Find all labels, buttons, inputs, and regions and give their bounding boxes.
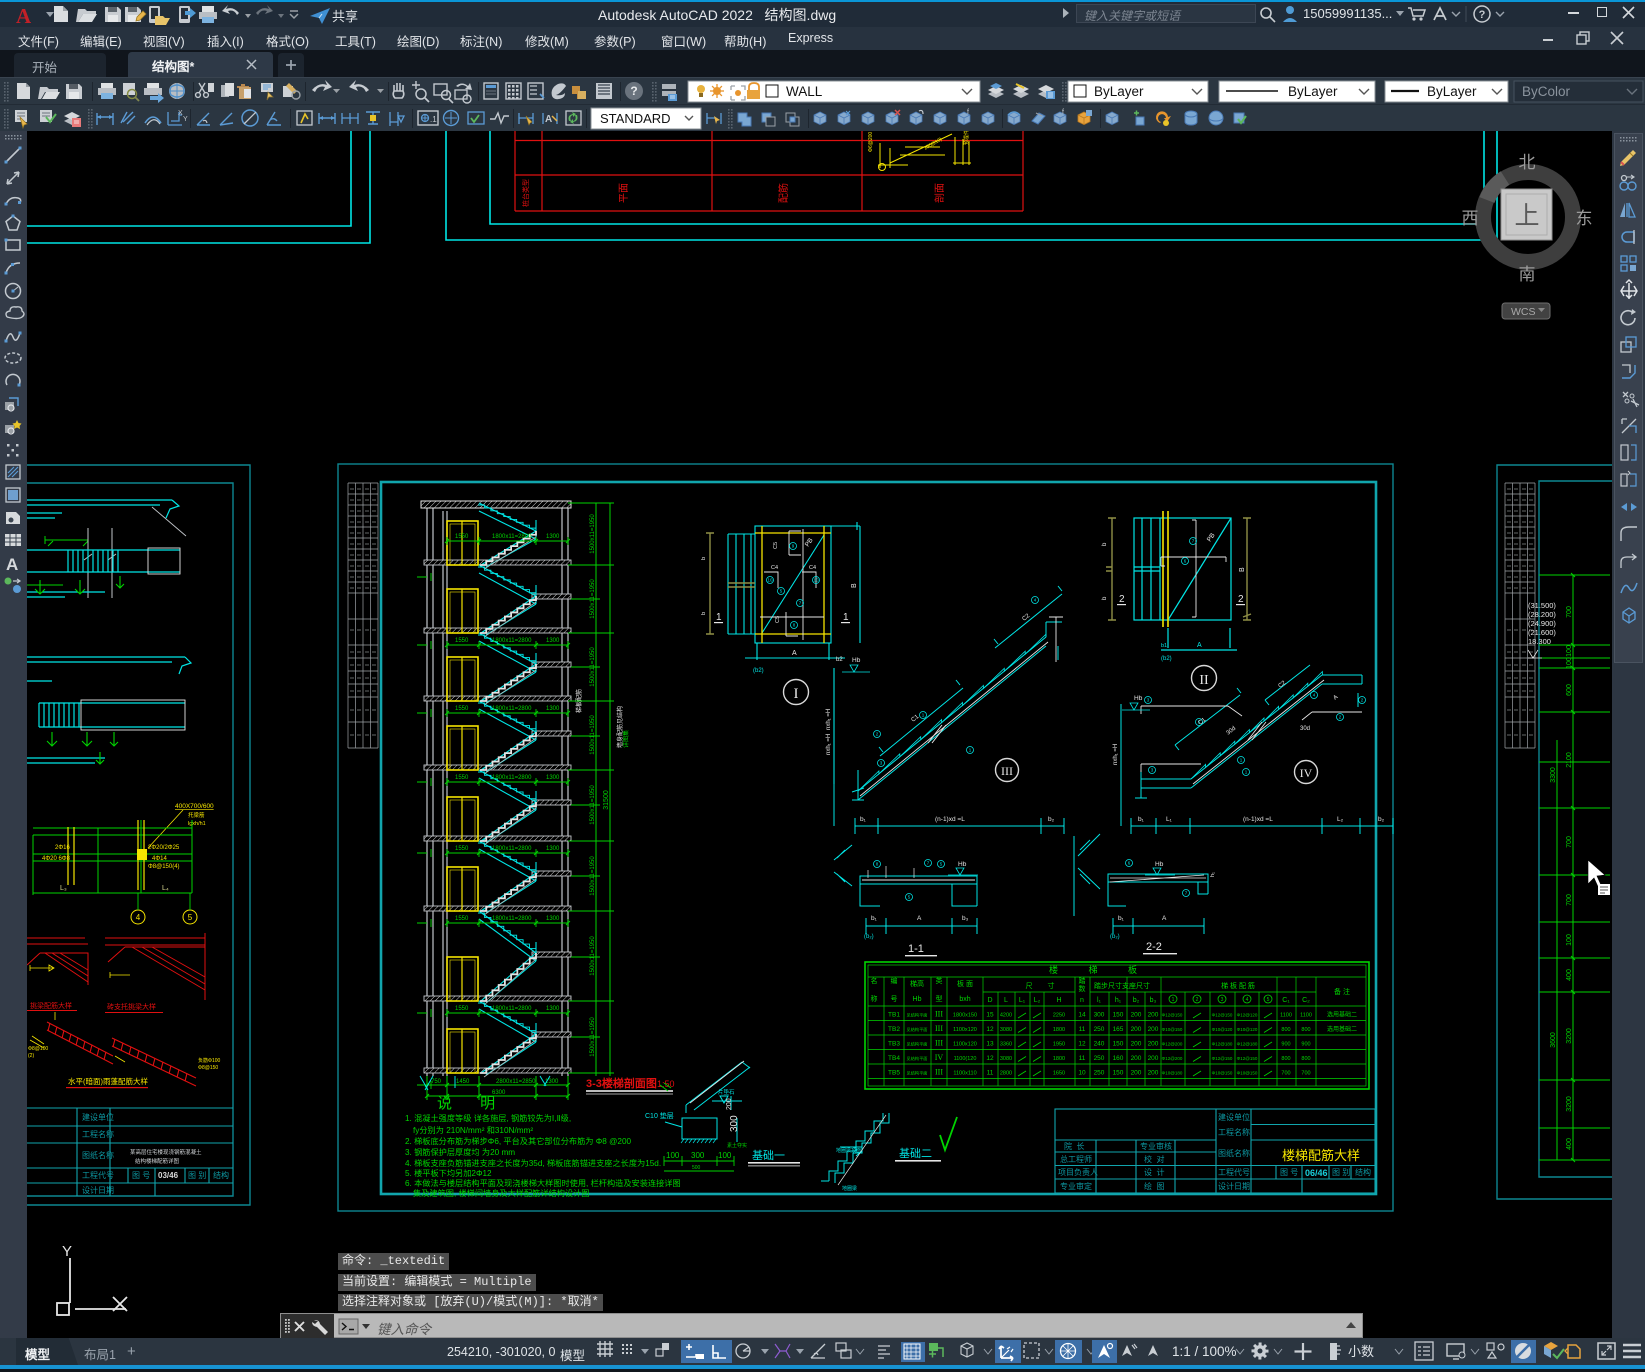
svg-text:砖支托挑梁大样: 砖支托挑梁大样 <box>107 1002 156 1011</box>
svg-text:5: 5 <box>940 862 943 867</box>
svg-text:A: A <box>792 650 797 657</box>
svg-text:Φ10@150: Φ10@150 <box>1162 1027 1183 1032</box>
svg-text:9: 9 <box>792 544 795 549</box>
svg-text:见结构平面: 见结构平面 <box>907 1041 928 1048</box>
svg-text:200: 200 <box>726 1098 733 1110</box>
svg-text:11: 11 <box>987 1070 994 1077</box>
svg-text:Hb: Hb <box>1155 861 1164 868</box>
svg-text:1550: 1550 <box>455 534 469 540</box>
svg-text:支座尺寸: 支座尺寸 <box>1122 981 1150 990</box>
svg-text:结构楼梯配筋详图: 结构楼梯配筋详图 <box>135 1157 180 1165</box>
svg-text:nxh₁ =H: nxh₁ =H <box>826 709 832 730</box>
svg-text:专业审定: 专业审定 <box>1060 1181 1092 1191</box>
svg-text:选用基础二: 选用基础二 <box>1327 1025 1357 1033</box>
svg-text:1300: 1300 <box>546 638 560 644</box>
svg-text:700: 700 <box>1281 1071 1290 1077</box>
svg-text:Φ8@150: Φ8@150 <box>198 1065 218 1071</box>
svg-text:5. 楼平板下均另加2Φ12: 5. 楼平板下均另加2Φ12 <box>405 1168 492 1178</box>
svg-text:见结构平面: 见结构平面 <box>907 1012 928 1019</box>
svg-text:设计日期: 设计日期 <box>82 1185 114 1195</box>
svg-text:见结构平面: 见结构平面 <box>907 1026 928 1033</box>
svg-text:3360: 3360 <box>1000 1042 1012 1048</box>
svg-text:3200: 3200 <box>1566 1096 1573 1112</box>
svg-text:数: 数 <box>1079 984 1086 993</box>
svg-text:lgxh/h1: lgxh/h1 <box>188 821 206 827</box>
svg-text:15: 15 <box>986 1012 994 1019</box>
svg-text:楼 梯 板: 楼 梯 板 <box>1049 964 1151 975</box>
svg-text:1: 1 <box>1172 997 1175 1003</box>
svg-text:基础一: 基础一 <box>752 1149 785 1162</box>
svg-text:素土夺实: 素土夺实 <box>727 1142 747 1149</box>
svg-text:III: III <box>1001 764 1013 778</box>
svg-text:400: 400 <box>1566 1138 1573 1150</box>
svg-text:1550: 1550 <box>455 916 469 922</box>
svg-text:100: 100 <box>1566 934 1573 946</box>
svg-text:Φ8@150(4): Φ8@150(4) <box>148 864 180 870</box>
svg-text:见结构平面: 见结构平面 <box>907 1055 928 1062</box>
svg-text:5: 5 <box>908 895 911 900</box>
svg-text:某高层住宅楼现浇钢筋混凝土: 某高层住宅楼现浇钢筋混凝土 <box>130 1148 202 1156</box>
svg-text:Φ12@200: Φ12@200 <box>1162 1042 1183 1047</box>
svg-text:8: 8 <box>876 862 879 867</box>
svg-text:图纸名称: 图纸名称 <box>1218 1148 1250 1158</box>
svg-text:2800x11=2850: 2800x11=2850 <box>496 1079 536 1085</box>
svg-text:ByLayer: ByLayer <box>1288 84 1338 99</box>
svg-text:nxh₁ =H: nxh₁ =H <box>826 734 832 755</box>
svg-text:b₁: b₁ <box>1138 816 1145 823</box>
svg-text:C4: C4 <box>809 565 816 571</box>
svg-text:ByColor: ByColor <box>1522 84 1571 99</box>
svg-text:图 号: 图 号 <box>1280 1168 1298 1177</box>
svg-text:墙身配筋见结构: 墙身配筋见结构 <box>616 706 624 748</box>
svg-text:C10 垫层: C10 垫层 <box>645 1111 674 1120</box>
svg-text:(24.900): (24.900) <box>1528 619 1556 628</box>
svg-text:L₃: L₃ <box>60 885 67 892</box>
svg-text:700: 700 <box>1566 836 1573 848</box>
svg-text:5: 5 <box>780 589 783 594</box>
svg-text:见结构平面: 见结构平面 <box>907 1070 928 1077</box>
svg-text:200: 200 <box>1131 1041 1142 1048</box>
svg-text:A: A <box>1162 915 1167 922</box>
svg-text:4200: 4200 <box>1000 1013 1012 1019</box>
svg-text:h₁: h₁ <box>1115 997 1122 1004</box>
svg-text:(n-1)xd =L: (n-1)xd =L <box>935 816 965 823</box>
svg-text:3600: 3600 <box>1550 1032 1557 1048</box>
svg-text:1800: 1800 <box>1053 1056 1065 1062</box>
svg-text:b₁: b₁ <box>871 915 878 922</box>
svg-text:1: 1 <box>922 713 925 718</box>
svg-text:STANDARD: STANDARD <box>600 111 671 126</box>
svg-text:II: II <box>1199 673 1209 688</box>
svg-text:设计日期: 设计日期 <box>1218 1181 1250 1191</box>
svg-text:Φ8@100: Φ8@100 <box>28 1046 48 1052</box>
svg-text:结构: 结构 <box>1355 1167 1371 1177</box>
svg-text:400: 400 <box>1566 969 1573 981</box>
svg-text:f: f <box>967 109 969 116</box>
svg-text:900: 900 <box>1301 1042 1310 1048</box>
svg-text:1550: 1550 <box>455 1006 469 1012</box>
svg-text:5: 5 <box>188 913 193 922</box>
svg-text:说 明: 说 明 <box>437 1095 507 1112</box>
svg-text:l₁: l₁ <box>1097 997 1102 1004</box>
svg-text:f: f <box>1062 109 1064 116</box>
svg-text:工程代号: 工程代号 <box>82 1170 114 1180</box>
svg-text:Φ10@180: Φ10@180 <box>1162 1071 1183 1076</box>
svg-text:楼梯配筋大样: 楼梯配筋大样 <box>1282 1148 1360 1163</box>
svg-text:100(210): 100(210) <box>923 136 944 151</box>
svg-text:1500x11=1950: 1500x11=1950 <box>590 647 596 687</box>
svg-text:100: 100 <box>1566 657 1573 669</box>
svg-text:Hb: Hb <box>913 996 922 1003</box>
svg-text:bxh: bxh <box>959 996 970 1003</box>
svg-text:1650: 1650 <box>1053 1071 1065 1077</box>
svg-text:4: 4 <box>1034 598 1037 603</box>
svg-text:800: 800 <box>1281 1027 1290 1033</box>
svg-text:200: 200 <box>1148 1012 1159 1019</box>
svg-text:1500x11=1950: 1500x11=1950 <box>590 715 596 755</box>
svg-text:ByLayer: ByLayer <box>1094 84 1144 99</box>
svg-text:1. 混凝土强度等级 详各施层, 钢筋铰先为Ⅰ,Ⅱ级,: 1. 混凝土强度等级 详各施层, 钢筋铰先为Ⅰ,Ⅱ级, <box>405 1113 571 1123</box>
svg-text:2: 2 <box>1238 594 1244 605</box>
svg-text:TB4: TB4 <box>888 1055 900 1062</box>
svg-text:图纸名称: 图纸名称 <box>82 1150 114 1160</box>
svg-text:2Φ16: 2Φ16 <box>55 845 70 851</box>
svg-text:2: 2 <box>1196 997 1199 1003</box>
svg-text:C2: C2 <box>1278 680 1288 690</box>
svg-text:2-2: 2-2 <box>1146 941 1162 953</box>
svg-text:1550: 1550 <box>455 775 469 781</box>
svg-text:250: 250 <box>1094 1055 1105 1062</box>
svg-text:3080: 3080 <box>1000 1027 1012 1033</box>
svg-text:东: 东 <box>1576 209 1593 228</box>
svg-text:型: 型 <box>936 994 943 1003</box>
svg-text:10: 10 <box>813 578 819 583</box>
svg-text:WALL: WALL <box>786 84 823 99</box>
svg-text:200: 200 <box>1131 1012 1142 1019</box>
svg-text:240: 240 <box>1094 1041 1105 1048</box>
svg-text:(31.500): (31.500) <box>1528 601 1556 610</box>
svg-text:200: 200 <box>1131 1055 1142 1062</box>
svg-text:b₂: b₂ <box>1133 997 1140 1004</box>
svg-text:Φ12@180: Φ12@180 <box>1212 1042 1233 1047</box>
svg-text:片垫石: 片垫石 <box>718 1088 735 1096</box>
svg-text:Φ12@150: Φ12@150 <box>1162 1013 1183 1018</box>
svg-text:1: 1 <box>716 612 722 623</box>
svg-text:选用基础二: 选用基础二 <box>1327 1011 1357 1019</box>
svg-text:200: 200 <box>1148 1041 1159 1048</box>
svg-text:图 别: 图 别 <box>188 1171 206 1180</box>
svg-text:工程名称: 工程名称 <box>82 1129 114 1139</box>
svg-text:1800x11=2800: 1800x11=2800 <box>492 534 532 540</box>
svg-text:1550: 1550 <box>455 846 469 852</box>
svg-text:4. 梯板支座负筋锚进支座之长度为35d, 梯板底筋锚进支座: 4. 梯板支座负筋锚进支座之长度为35d, 梯板底筋锚进支座之长度为15d. <box>405 1158 661 1168</box>
svg-text:100: 100 <box>1566 645 1573 657</box>
svg-text:1800x11=2800: 1800x11=2800 <box>492 706 532 712</box>
svg-text:12: 12 <box>986 1026 994 1033</box>
svg-text:7: 7 <box>1185 891 1188 896</box>
svg-text:1550: 1550 <box>455 638 469 644</box>
svg-text:2: 2 <box>1339 715 1342 720</box>
svg-text:1500x11=1950: 1500x11=1950 <box>590 514 596 554</box>
svg-text:(28.200): (28.200) <box>1528 610 1556 619</box>
svg-text:7: 7 <box>1192 539 1195 544</box>
svg-text:h₁: h₁ <box>1210 872 1216 877</box>
svg-text:1800x11=2800: 1800x11=2800 <box>492 846 532 852</box>
svg-text:L₂: L₂ <box>1034 997 1041 1004</box>
svg-text:1500x11=1950: 1500x11=1950 <box>590 856 596 896</box>
svg-text:地圈梁: 地圈梁 <box>842 1185 857 1192</box>
svg-text:D: D <box>987 997 992 1004</box>
svg-text:3. 钢筋保护层厚度均 为20 mm: 3. 钢筋保护层厚度均 为20 mm <box>405 1147 515 1157</box>
svg-text:1: 1 <box>843 612 849 623</box>
svg-text:类: 类 <box>936 976 943 985</box>
svg-text:1800x11=2800: 1800x11=2800 <box>492 916 532 922</box>
svg-text:b: b <box>1102 596 1108 600</box>
svg-text:12: 12 <box>1078 1041 1086 1048</box>
svg-text:总工程师: 总工程师 <box>1060 1154 1092 1164</box>
svg-text:31500: 31500 <box>603 790 610 810</box>
svg-text:Hb: Hb <box>1134 695 1143 702</box>
svg-text:200: 200 <box>1131 1070 1142 1077</box>
svg-text:Φ12@180: Φ12@180 <box>1237 1042 1258 1047</box>
svg-text:B: B <box>1239 567 1246 572</box>
svg-text:项目负责人: 项目负责人 <box>1058 1167 1098 1177</box>
svg-text:1-1: 1-1 <box>908 943 924 955</box>
svg-text:Hb: Hb <box>958 861 967 868</box>
svg-text:3-3楼梯剖面图: 3-3楼梯剖面图 <box>586 1076 657 1090</box>
svg-text:6: 6 <box>1184 559 1187 564</box>
svg-text:配筋: 配筋 <box>777 183 790 203</box>
svg-text:100: 100 <box>666 1151 680 1160</box>
svg-text:称: 称 <box>871 994 878 1003</box>
svg-text:b: b <box>701 557 707 560</box>
svg-text:桩台类型: 桩台类型 <box>521 179 530 207</box>
svg-text:TB5: TB5 <box>888 1070 900 1077</box>
svg-text:3300: 3300 <box>1550 767 1557 783</box>
svg-text:踏: 踏 <box>1079 976 1086 985</box>
svg-text:北: 北 <box>1519 153 1536 172</box>
svg-text:700: 700 <box>1301 1071 1310 1077</box>
svg-text:L₁: L₁ <box>1166 816 1173 823</box>
svg-text:小数: 小数 <box>1348 1344 1374 1359</box>
svg-text:100: 100 <box>718 1151 732 1160</box>
svg-text:200: 200 <box>1148 1026 1159 1033</box>
svg-text:300: 300 <box>729 1115 740 1132</box>
svg-text:TB2: TB2 <box>888 1026 900 1033</box>
svg-text:图 别: 图 别 <box>1332 1168 1350 1177</box>
svg-text:TB1: TB1 <box>888 1012 900 1019</box>
svg-text:b1: b1 <box>1161 643 1167 649</box>
svg-text:PB: PB <box>1206 532 1217 543</box>
svg-text:III: III <box>935 1068 943 1077</box>
svg-text:700: 700 <box>1566 894 1573 906</box>
svg-text:1500x11=1950: 1500x11=1950 <box>590 785 596 825</box>
svg-text:800: 800 <box>1281 1056 1290 1062</box>
svg-text:IV: IV <box>935 1053 944 1062</box>
svg-text:1800x11=2800: 1800x11=2800 <box>492 1006 532 1012</box>
svg-text:工程名称: 工程名称 <box>1218 1127 1250 1137</box>
svg-text:1100x110: 1100x110 <box>953 1071 976 1077</box>
svg-text:2250: 2250 <box>1053 1013 1065 1019</box>
svg-text:1800x11=2800: 1800x11=2800 <box>492 638 532 644</box>
svg-text:b: b <box>701 612 707 615</box>
svg-text:C₂: C₂ <box>1302 997 1310 1004</box>
svg-text:托梁筋: 托梁筋 <box>188 811 205 819</box>
svg-text:Hb: Hb <box>852 657 861 664</box>
svg-text:L: L <box>1004 997 1008 1004</box>
svg-text:(b2): (b2) <box>753 668 764 674</box>
svg-text:2: 2 <box>876 732 879 737</box>
svg-text:C5: C5 <box>775 616 781 623</box>
svg-text:B: B <box>851 583 858 588</box>
svg-text:图 号: 图 号 <box>132 1171 150 1180</box>
svg-text:梯高: 梯高 <box>910 979 924 988</box>
svg-text:西: 西 <box>1462 209 1479 228</box>
svg-text:?: ? <box>1479 9 1486 21</box>
svg-text:b₃: b₃ <box>962 915 969 922</box>
svg-text:2Φ20/2Φ25: 2Φ20/2Φ25 <box>148 845 180 851</box>
svg-text:板 面: 板 面 <box>957 979 973 988</box>
svg-text:b₁: b₁ <box>860 816 867 823</box>
svg-text:负筋Φ100: 负筋Φ100 <box>198 1057 221 1064</box>
svg-text:12: 12 <box>986 1055 994 1062</box>
svg-text:A: A <box>1197 642 1202 649</box>
svg-text:III: III <box>935 1010 943 1019</box>
svg-text:3: 3 <box>880 761 883 766</box>
svg-text:C2: C2 <box>1021 613 1031 623</box>
svg-text:A: A <box>545 114 552 125</box>
svg-text:1300: 1300 <box>546 706 560 712</box>
svg-text:1100: 1100 <box>1280 1013 1292 1019</box>
svg-text:700: 700 <box>1566 606 1573 618</box>
svg-text:Φ6@200: Φ6@200 <box>868 132 874 152</box>
svg-text:Φ10@120: Φ10@120 <box>1212 1027 1233 1032</box>
svg-text:(2): (2) <box>28 1053 34 1059</box>
svg-text:900: 900 <box>1281 1042 1290 1048</box>
svg-text:7: 7 <box>799 601 802 606</box>
svg-text:水平(暗面)雨蓬配筋大样: 水平(暗面)雨蓬配筋大样 <box>68 1076 148 1086</box>
svg-text:号: 号 <box>891 995 898 1003</box>
svg-text:fy分别为 210N/mm² 和310N/mm²: fy分别为 210N/mm² 和310N/mm² <box>413 1125 533 1135</box>
svg-text:1500x11=1950: 1500x11=1950 <box>590 1017 596 1057</box>
svg-text:6. 本做法与楼层结构平面及现浇楼梯大样图时使用, 栏杆构造: 6. 本做法与楼层结构平面及现浇楼梯大样图时使用, 栏杆构造及安装连接详图 <box>405 1178 681 1188</box>
svg-text:Φ12@150: Φ12@150 <box>1237 1056 1258 1061</box>
svg-text:Y: Y <box>62 1243 72 1260</box>
svg-text:b2: b2 <box>836 657 843 663</box>
svg-text:3: 3 <box>1151 768 1154 773</box>
svg-text:详图集: 详图集 <box>622 730 630 748</box>
svg-text:500: 500 <box>692 1165 701 1171</box>
svg-text:4Φ20 6Φ8: 4Φ20 6Φ8 <box>42 856 71 862</box>
svg-text:Φ10@120: Φ10@120 <box>1237 1027 1258 1032</box>
svg-text:(b2): (b2) <box>1161 656 1172 662</box>
svg-text:200: 200 <box>1148 1070 1159 1077</box>
svg-text:A: A <box>1333 694 1340 701</box>
svg-text:(21.600): (21.600) <box>1528 628 1556 637</box>
svg-text:C5: C5 <box>773 542 779 549</box>
svg-text:1500x11=1950: 1500x11=1950 <box>590 936 596 976</box>
svg-text:梯板配筋: 梯板配筋 <box>575 689 583 713</box>
svg-text:1: 1 <box>1240 758 1243 763</box>
svg-text:7: 7 <box>927 861 930 866</box>
svg-text:4Φ14: 4Φ14 <box>152 856 167 862</box>
svg-text:IV: IV <box>1300 766 1313 780</box>
svg-text:名: 名 <box>871 976 878 985</box>
svg-text:Φ12@200: Φ12@200 <box>1162 1056 1183 1061</box>
svg-text:.1: .1 <box>430 115 437 124</box>
svg-text:11: 11 <box>1079 1026 1086 1033</box>
svg-text:1450: 1450 <box>456 1079 470 1085</box>
svg-text:Φ10@150: Φ10@150 <box>1237 1071 1258 1076</box>
svg-text:18.300: 18.300 <box>1528 637 1551 646</box>
svg-text:结构: 结构 <box>213 1170 229 1180</box>
svg-text:Y: Y <box>183 116 188 123</box>
svg-text:1500x11=1950: 1500x11=1950 <box>590 579 596 619</box>
svg-text:b₁: b₁ <box>1118 915 1125 922</box>
svg-text:上: 上 <box>1514 202 1539 230</box>
svg-text:III: III <box>935 1039 943 1048</box>
svg-text:200: 200 <box>1131 1026 1142 1033</box>
svg-text:160: 160 <box>1113 1055 1124 1062</box>
svg-text:梯 板 配 筋: 梯 板 配 筋 <box>1221 981 1255 990</box>
svg-text:尺: 尺 <box>1026 982 1033 990</box>
svg-text:400X700/600: 400X700/600 <box>175 803 214 810</box>
svg-text:4: 4 <box>1313 693 1316 698</box>
svg-text:专业审核: 专业审核 <box>1140 1141 1172 1151</box>
svg-text:6: 6 <box>1128 861 1131 866</box>
svg-text:13: 13 <box>986 1041 994 1048</box>
svg-text:1100x120: 1100x120 <box>953 1042 977 1048</box>
svg-text:(b₂): (b₂) <box>864 934 874 940</box>
svg-text:n: n <box>1080 997 1084 1004</box>
svg-text:b₂: b₂ <box>1378 816 1385 823</box>
svg-text:(n-1)xd =L: (n-1)xd =L <box>1243 816 1273 823</box>
svg-text:4: 4 <box>1246 997 1249 1003</box>
svg-text:2: 2 <box>1119 594 1125 605</box>
svg-text:3200: 3200 <box>1566 1028 1573 1044</box>
svg-text:1300: 1300 <box>546 916 560 922</box>
svg-text:150: 150 <box>1113 1041 1124 1048</box>
svg-text:L₄: L₄ <box>162 885 169 892</box>
svg-text:Φ10@150: Φ10@150 <box>1212 1071 1233 1076</box>
svg-text:1: 1 <box>969 748 972 753</box>
svg-text:600: 600 <box>1566 684 1573 696</box>
svg-text:1300: 1300 <box>546 775 560 781</box>
svg-text:5: 5 <box>1267 997 1270 1003</box>
svg-text:10: 10 <box>767 578 773 583</box>
svg-text:165: 165 <box>1113 1026 1124 1033</box>
svg-text:150: 150 <box>1113 1070 1124 1077</box>
svg-text:30d: 30d <box>1300 726 1310 732</box>
svg-text:150: 150 <box>1113 1012 1124 1019</box>
svg-text:nxh₁ =H: nxh₁ =H <box>1113 744 1119 765</box>
svg-text:1800x11=2800: 1800x11=2800 <box>492 775 532 781</box>
svg-text:Φ12@150: Φ12@150 <box>1212 1056 1233 1061</box>
svg-text:I: I <box>794 686 799 702</box>
svg-text:TB3: TB3 <box>888 1041 900 1048</box>
svg-text:1550: 1550 <box>455 706 469 712</box>
svg-text:1300: 1300 <box>546 846 560 852</box>
svg-text:C₁: C₁ <box>1282 997 1290 1004</box>
svg-text:11: 11 <box>1079 1055 1086 1062</box>
svg-text:PB: PB <box>804 537 815 548</box>
svg-text:建设单位: 建设单位 <box>1218 1112 1250 1122</box>
svg-text:L₁: L₁ <box>1019 997 1026 1004</box>
svg-text:2800: 2800 <box>1000 1071 1012 1077</box>
svg-text:ByLayer: ByLayer <box>1427 84 1477 99</box>
svg-text:1100: 1100 <box>1300 1013 1312 1019</box>
svg-text:250: 250 <box>1094 1070 1105 1077</box>
